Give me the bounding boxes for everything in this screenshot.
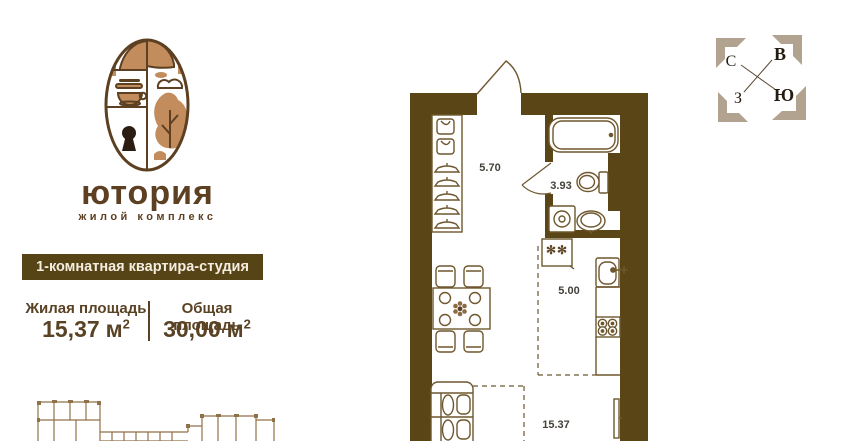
bathroom-area-label: 3.93 [541, 180, 581, 192]
living-room-area-label: 15.37 [534, 419, 578, 431]
chair [464, 331, 483, 352]
living-area-value: 15,37м2 [24, 316, 148, 343]
brand-tagline: жилой комплекс [60, 211, 235, 223]
building-overview-plan [28, 394, 278, 441]
living-area-sup: 2 [123, 316, 130, 331]
total-area-number: 30,00 [163, 316, 221, 342]
compass-east-label: В [774, 44, 786, 64]
living-area-unit: м [106, 316, 123, 342]
compass-west-label: З [734, 90, 742, 107]
apartment-floorplan [405, 55, 660, 441]
compass-south-label: Ю [774, 85, 794, 105]
toilet [577, 172, 608, 193]
hallway-closet [432, 115, 462, 232]
washing-machine [549, 206, 575, 232]
chair [436, 266, 455, 287]
kitchen-area-label: 5.00 [549, 285, 589, 297]
zone-dashed-lines [473, 246, 596, 441]
chair [464, 266, 483, 287]
living-area-label: Жилая площадь [24, 300, 148, 317]
compass-brackets [716, 35, 806, 122]
sofa [431, 382, 473, 441]
stove [596, 317, 620, 337]
logo-emblem [102, 36, 192, 174]
hallway-area-label: 5.70 [470, 162, 510, 174]
compass-north-label: С [726, 53, 737, 70]
floorplan-flyer: ютория жилой комплекс 1-комнатная кварти… [0, 0, 843, 441]
brand-name: ютория [60, 174, 235, 213]
coffee-cup-icon [116, 79, 146, 106]
entry-door [477, 61, 521, 94]
total-area-sup: 2 [244, 316, 251, 331]
apartment-type-banner: 1-комнатная квартира-студия [22, 254, 263, 280]
chair [436, 331, 455, 352]
logo-curtain-left [120, 41, 147, 70]
overview-wall-piers [37, 400, 275, 428]
compass-cross-lines [741, 60, 776, 92]
bathtub [549, 118, 618, 152]
area-divider [148, 301, 150, 341]
keyhole-icon [122, 126, 136, 151]
fridge-freezer-stars: ✻✻ [543, 243, 571, 257]
total-area-value: 30,00м2 [152, 316, 262, 343]
total-area-unit: м [227, 316, 244, 342]
living-area-number: 15,37 [42, 316, 100, 342]
dining-set [433, 266, 490, 352]
tree-icon [154, 93, 188, 160]
cloud-icon [155, 72, 182, 88]
compass-rose: С В З Ю [700, 25, 815, 130]
